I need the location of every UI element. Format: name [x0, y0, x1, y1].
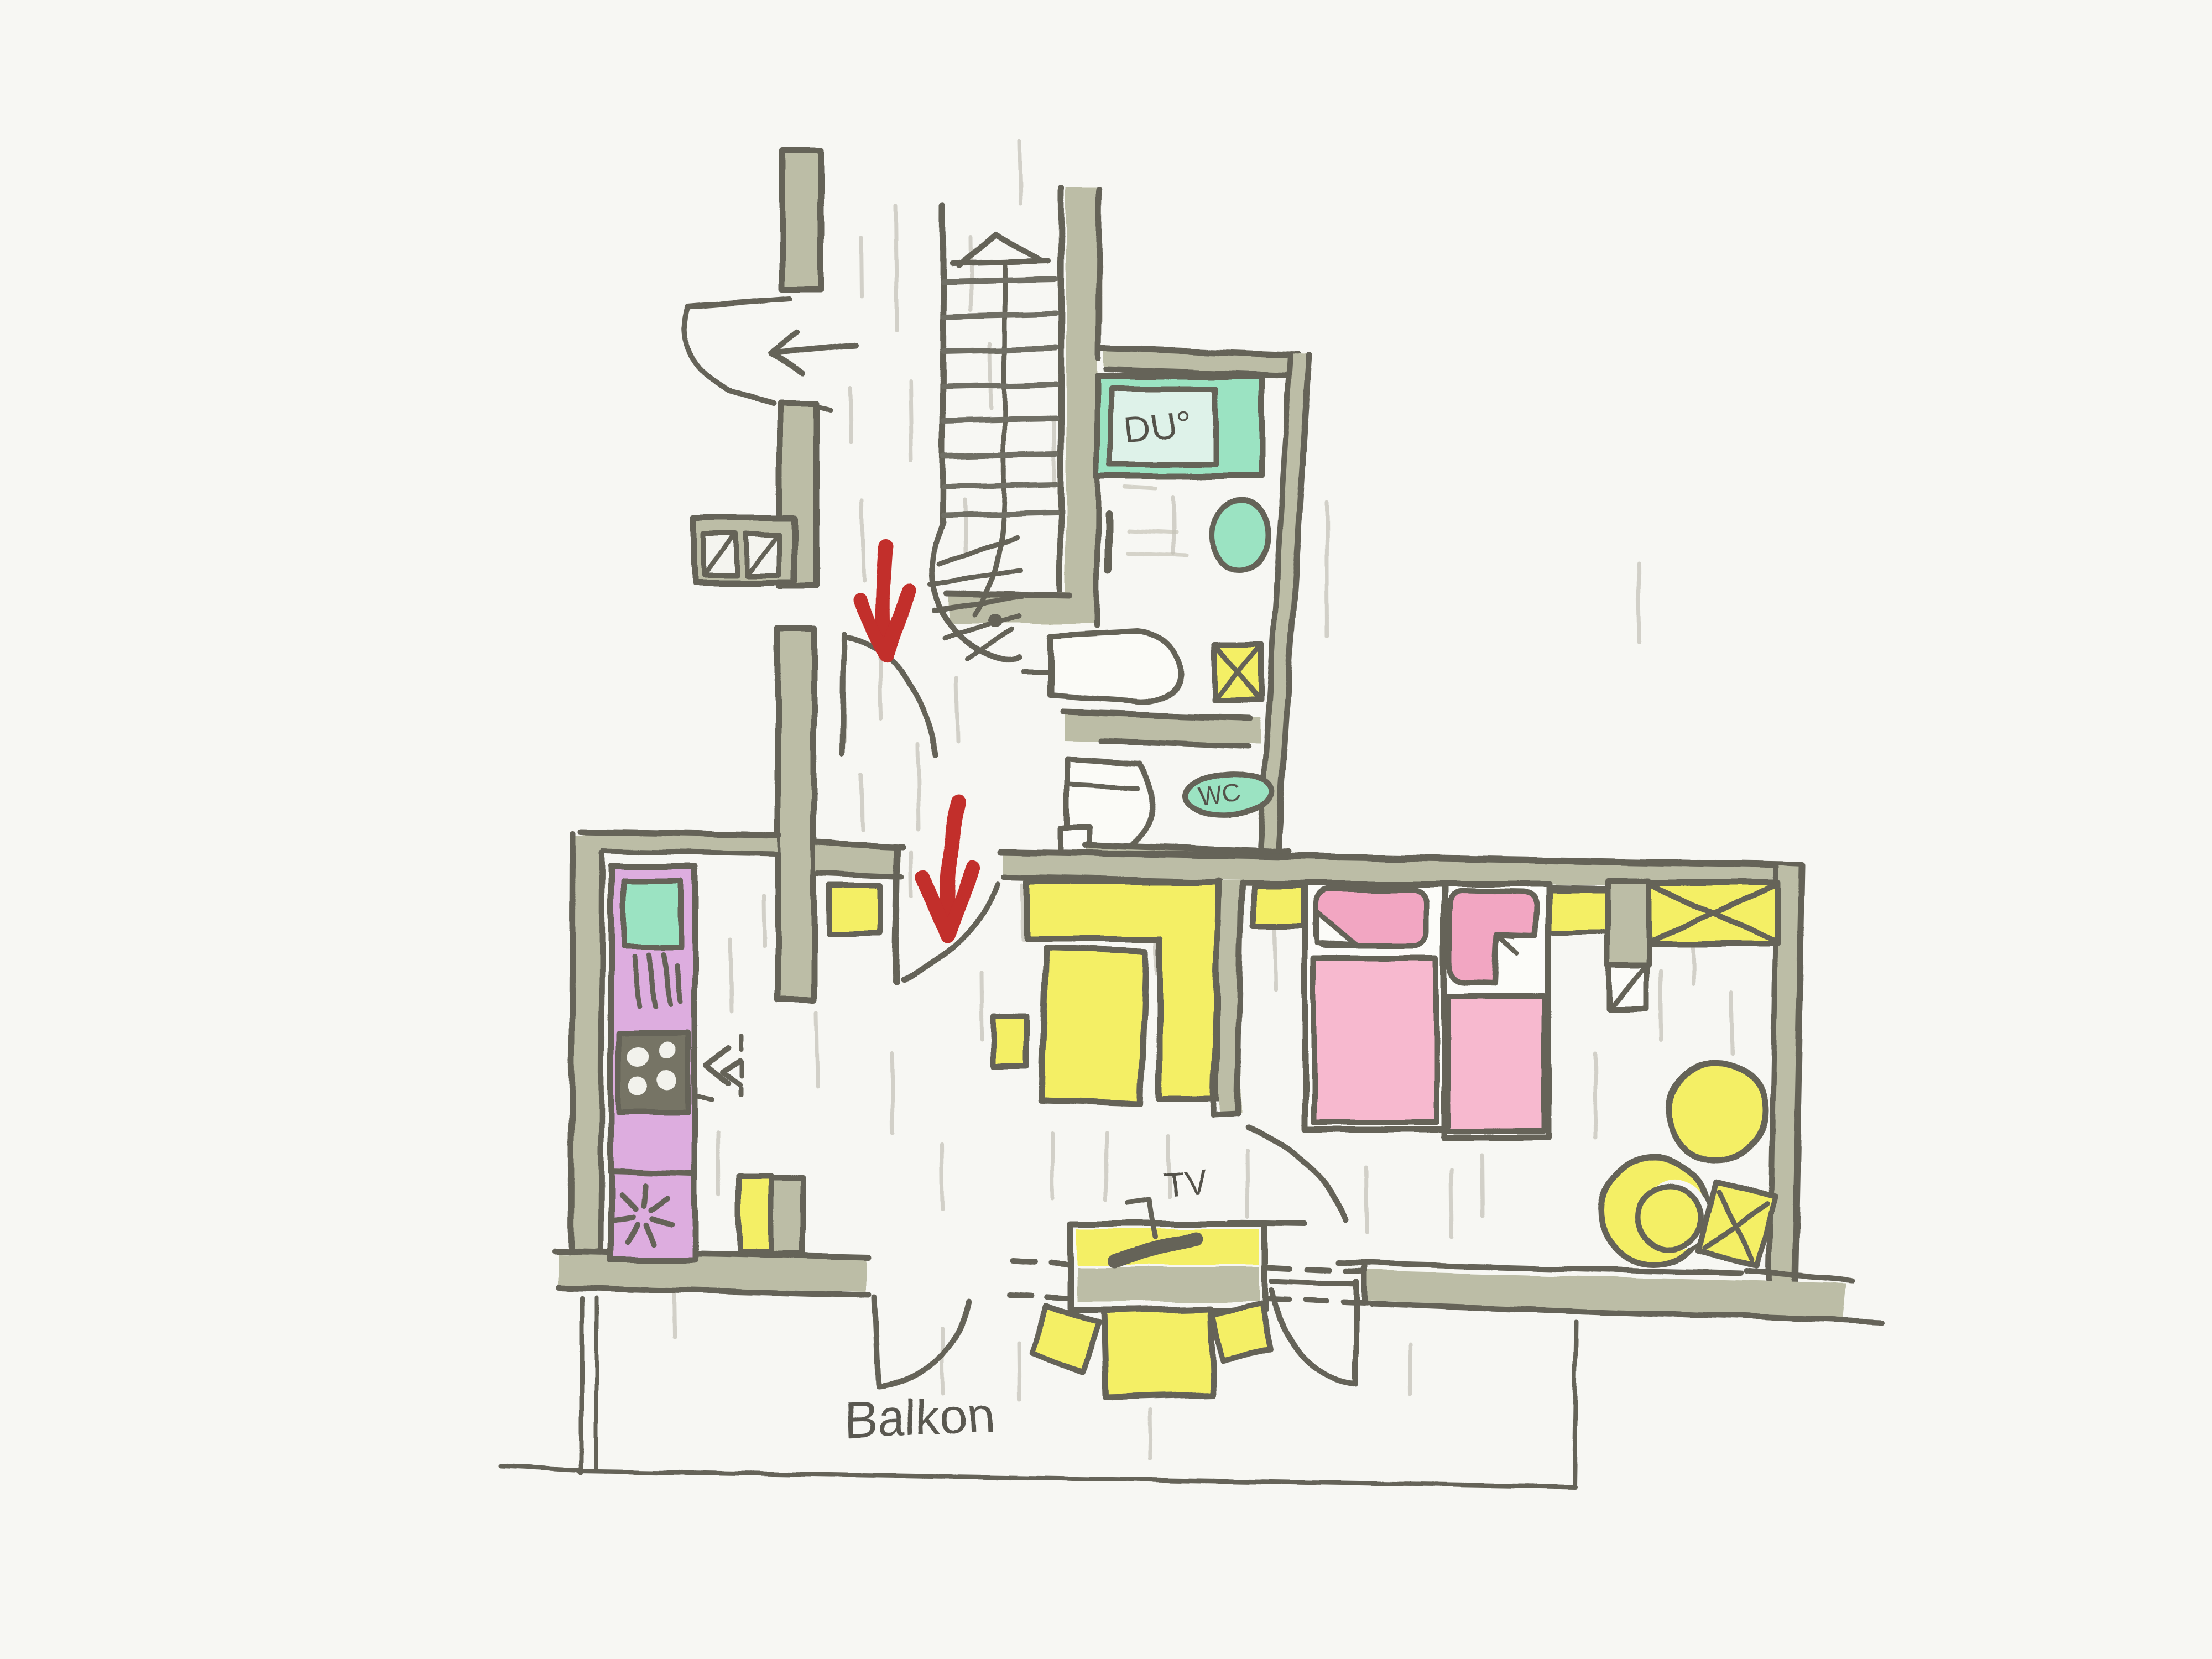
svg-text:Balkon: Balkon [844, 1387, 995, 1447]
svg-text:WC: WC [1196, 777, 1243, 812]
svg-text:TV: TV [1161, 1163, 1209, 1206]
svg-text:DU°: DU° [1123, 404, 1194, 450]
